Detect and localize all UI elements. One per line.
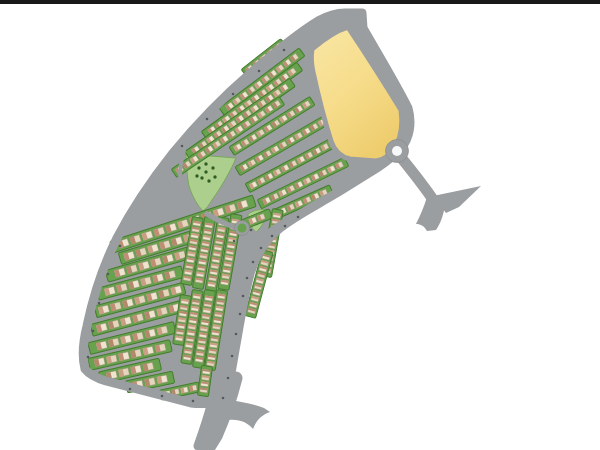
park-tree: [200, 176, 203, 179]
roadside-dot: [232, 93, 235, 96]
roadside-dot: [192, 400, 195, 403]
roadside-dot: [98, 302, 101, 305]
master-plan-image: [0, 0, 600, 450]
park-tree: [204, 170, 207, 173]
northeast-road-tail: [416, 197, 446, 231]
park-tree: [211, 166, 214, 169]
roadside-dot: [246, 277, 249, 280]
roadside-dot: [252, 261, 255, 264]
south-trumpet-ramp: [225, 399, 270, 429]
roadside-dot: [239, 313, 242, 316]
roadside-dot: [233, 240, 236, 243]
roadside-dot: [283, 49, 286, 52]
roadside-dot: [87, 356, 90, 359]
roadside-dot: [235, 333, 238, 336]
letterbox-top-bar: [0, 0, 600, 4]
park-tree: [195, 174, 198, 177]
roadside-dot: [284, 225, 287, 228]
roadside-dot: [206, 118, 209, 121]
roadside-dot: [250, 229, 253, 232]
entry-roundabout-island: [392, 146, 402, 156]
roadside-dot: [181, 145, 184, 148]
roadside-dot: [119, 245, 122, 248]
roadside-dot: [297, 216, 300, 219]
plan-svg: [0, 0, 600, 450]
roadside-dot: [242, 295, 245, 298]
entry-road-northeast: [399, 155, 434, 201]
roadside-dot: [161, 395, 164, 398]
park-tree: [197, 166, 200, 169]
roadside-dot: [92, 330, 95, 333]
roadside-dot: [260, 247, 263, 250]
roadside-dot: [129, 388, 132, 391]
roadside-dot: [227, 377, 230, 380]
park-tree: [213, 175, 216, 178]
roadside-dot: [231, 355, 234, 358]
mini-roundabout-island: [238, 224, 247, 233]
park-tree: [207, 179, 210, 182]
roadside-dot: [222, 397, 225, 400]
roadside-dot: [107, 273, 110, 276]
roadside-dot: [258, 70, 261, 73]
roadside-dot: [271, 235, 274, 238]
park-tree: [204, 162, 207, 165]
